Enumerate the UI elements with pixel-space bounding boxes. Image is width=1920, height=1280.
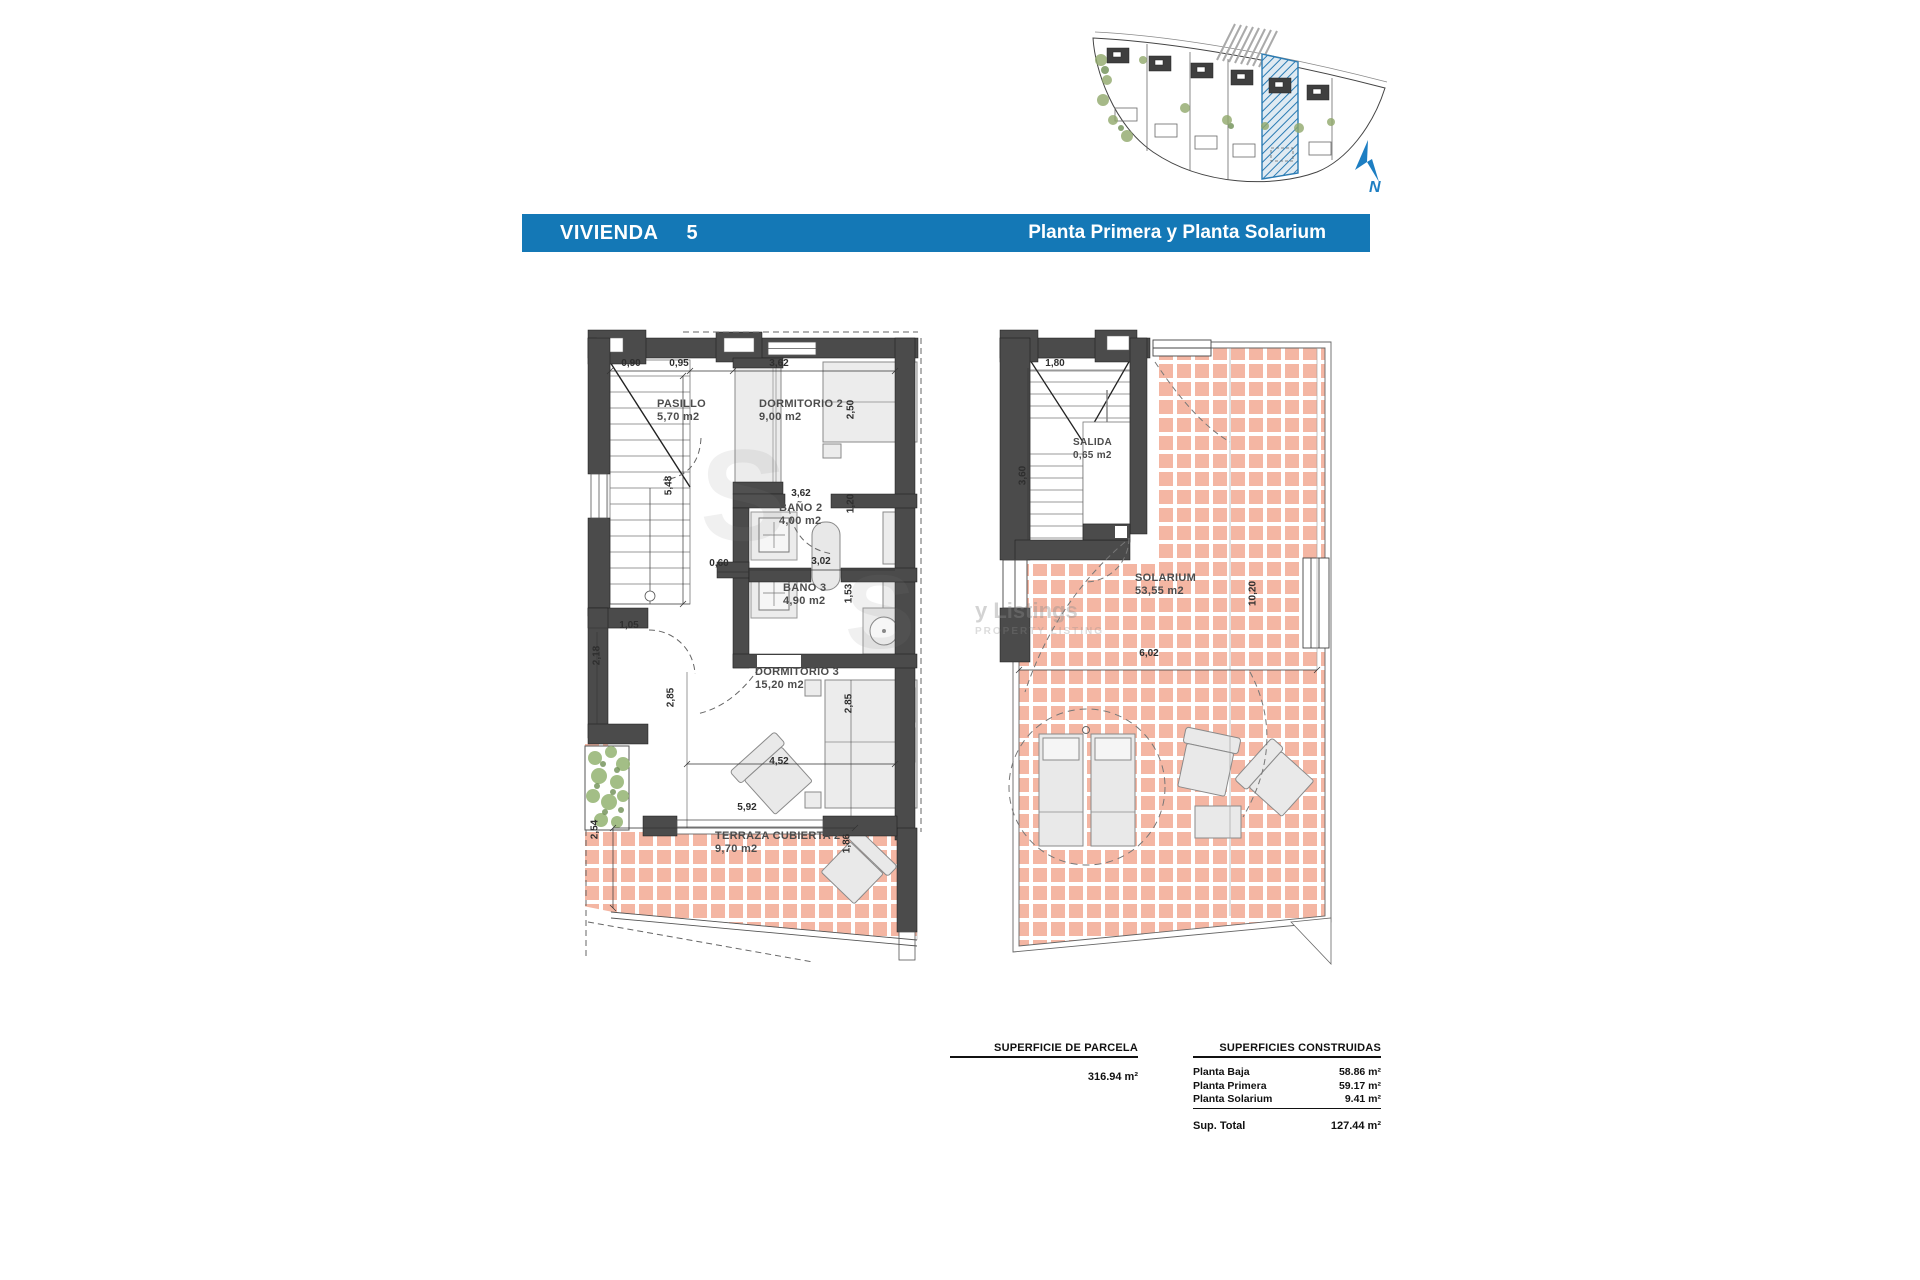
room-label-solarium: SOLARIUM 53,55 m2 xyxy=(1135,572,1196,598)
parcel-area-table: SUPERFICIE DE PARCELA 316.94 m² xyxy=(950,1042,1138,1083)
total-label: Sup. Total xyxy=(1193,1120,1245,1132)
table-row: Planta Primera 59.17 m² xyxy=(1193,1080,1381,1094)
dim: 6,02 xyxy=(1129,648,1169,659)
parcel-table-header: SUPERFICIE DE PARCELA xyxy=(950,1042,1138,1058)
highlighted-plot xyxy=(1262,54,1298,179)
room-label-terraza: TERRAZA CUBIERTA 2 9,70 m2 xyxy=(715,830,840,856)
row-value: 58.86 m² xyxy=(1339,1066,1381,1080)
dim: 2,50 xyxy=(846,390,857,430)
title-bar: VIVIENDA 5 Planta Primera y Planta Solar… xyxy=(522,214,1370,252)
dim: 3,02 xyxy=(801,556,841,567)
room-label-bano-3: BAÑO 3 4,90 m2 xyxy=(783,582,826,608)
page: N VIVIENDA 5 Planta Primera y Planta Sol… xyxy=(0,0,1920,1280)
dwelling-number: 5 xyxy=(686,222,697,245)
built-table-rows: Planta Baja 58.86 m² Planta Primera 59.1… xyxy=(1193,1066,1381,1109)
room-label-dormitorio-3: DORMITORIO 3 15,20 m2 xyxy=(755,666,839,692)
dim: 1,80 xyxy=(1035,358,1075,369)
watermark-text: PROPERTY LISTING xyxy=(975,626,1104,637)
row-label: Planta Baja xyxy=(1193,1066,1250,1080)
dim: 3,60 xyxy=(1018,456,1029,496)
north-label: N xyxy=(1369,179,1381,196)
corner-notch xyxy=(1291,918,1331,964)
dim: 5,92 xyxy=(727,802,767,813)
solarium-table xyxy=(1195,806,1241,838)
table-row: Planta Baja 58.86 m² xyxy=(1193,1066,1381,1080)
dim: 4,52 xyxy=(759,756,799,767)
room-label-salida: SALIDA 0,65 m2 xyxy=(1073,436,1112,462)
site-plan: N xyxy=(1085,8,1405,198)
room-label-dormitorio-2: DORMITORIO 2 9,00 m2 xyxy=(759,398,843,424)
dim: 2,85 xyxy=(666,678,677,718)
row-label: Planta Primera xyxy=(1193,1080,1267,1094)
watermark-letter: S xyxy=(700,430,787,560)
watermark-text: y Listings xyxy=(975,598,1078,624)
dim: 0,90 xyxy=(611,358,651,369)
dwelling-title: VIVIENDA xyxy=(560,222,658,245)
dim: 3,62 xyxy=(781,488,821,499)
row-value: 59.17 m² xyxy=(1339,1080,1381,1094)
dim: 1,20 xyxy=(846,484,857,524)
staircase xyxy=(610,360,690,604)
total-value: 127.44 m² xyxy=(1331,1120,1381,1132)
dim: 1,05 xyxy=(609,620,649,631)
row-value: 9.41 m² xyxy=(1345,1093,1381,1107)
dim: 5,48 xyxy=(664,466,675,506)
dim: 0,95 xyxy=(659,358,699,369)
parcel-area-value: 316.94 m² xyxy=(950,1071,1138,1083)
built-table-header: SUPERFICIES CONSTRUIDAS xyxy=(1193,1042,1381,1058)
site-plan-drawing: N xyxy=(1085,8,1405,198)
north-arrow: N xyxy=(1355,140,1381,196)
dim: 10,20 xyxy=(1248,574,1259,614)
floor-subtitle: Planta Primera y Planta Solarium xyxy=(1028,222,1326,244)
table-row: Planta Solarium 9.41 m² xyxy=(1193,1093,1381,1109)
dim: 2,54 xyxy=(590,810,601,850)
built-area-table: SUPERFICIES CONSTRUIDAS Planta Baja 58.8… xyxy=(1193,1042,1381,1132)
watermark-letter: S xyxy=(845,560,915,665)
dim: 2,18 xyxy=(592,636,603,676)
table-total-row: Sup. Total 127.44 m² xyxy=(1193,1120,1381,1132)
room-label-pasillo: PASILLO 5,70 m2 xyxy=(657,398,706,424)
dim: 3,62 xyxy=(759,358,799,369)
dim: 2,85 xyxy=(844,684,855,724)
dim: 1,86 xyxy=(842,824,853,864)
row-label: Planta Solarium xyxy=(1193,1093,1272,1107)
